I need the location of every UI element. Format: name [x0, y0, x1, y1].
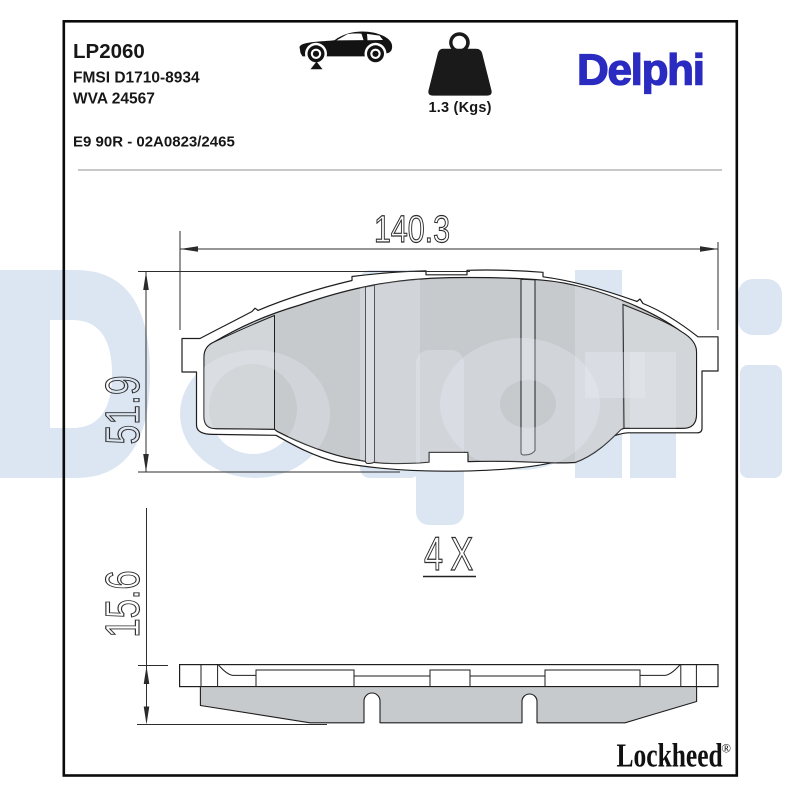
svg-text:WVA 24567: WVA 24567 [73, 91, 155, 108]
svg-text:Lockheed: Lockheed [617, 736, 723, 774]
svg-text:140.3: 140.3 [374, 209, 450, 251]
svg-text:1.3 (Kgs): 1.3 (Kgs) [429, 100, 492, 116]
svg-text:FMSI D1710-8934: FMSI D1710-8934 [73, 70, 200, 87]
svg-text:®: ® [722, 742, 732, 756]
svg-text:E9 90R - 02A0823/2465: E9 90R - 02A0823/2465 [73, 134, 235, 151]
svg-text:51.9: 51.9 [96, 375, 149, 444]
svg-text:4X: 4X [424, 528, 481, 581]
svg-text:Delphi: Delphi [577, 46, 705, 95]
svg-text:15.6: 15.6 [95, 570, 149, 637]
svg-text:LP2060: LP2060 [73, 40, 145, 63]
